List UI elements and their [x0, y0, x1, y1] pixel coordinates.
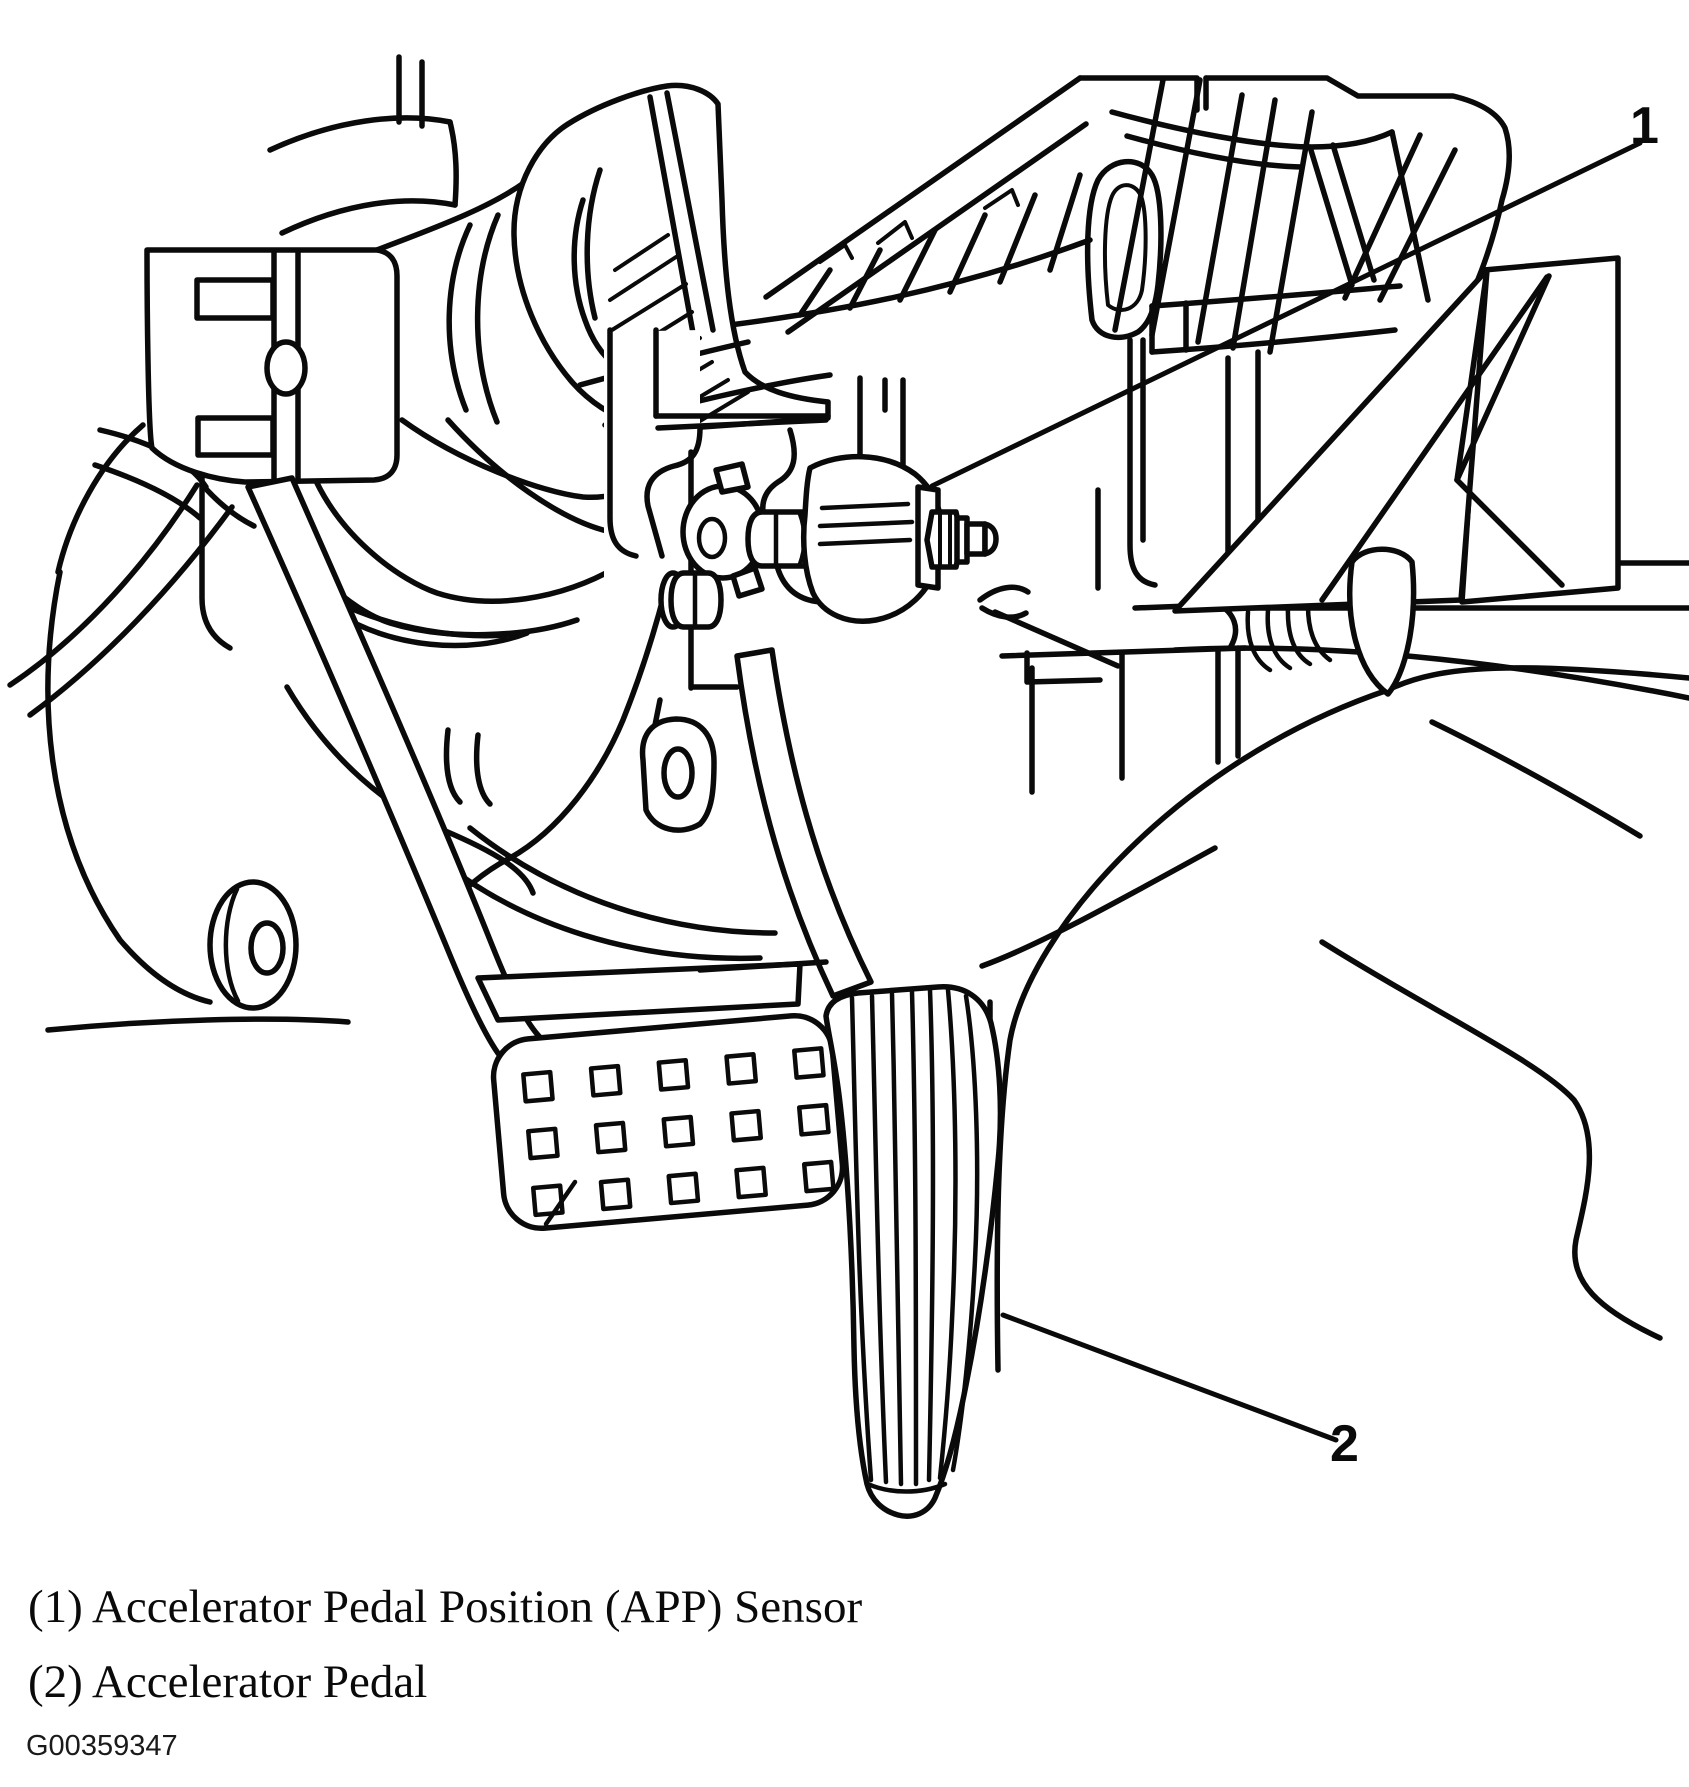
floor-tunnel-curves	[982, 668, 1689, 1370]
app-sensor	[661, 457, 996, 627]
caption-line-2: (2) Accelerator Pedal	[28, 1655, 427, 1709]
callout-label-2: 2	[1330, 1418, 1359, 1470]
firewall-grommet	[48, 882, 348, 1030]
harness-curves	[10, 395, 232, 1002]
figure-id: G00359347	[26, 1730, 178, 1763]
callout-label-1: 1	[1630, 100, 1659, 152]
leader-line-2	[1003, 1315, 1336, 1440]
hvac-duct-panel	[1175, 258, 1618, 694]
pedal-assembly-line-art	[0, 0, 1689, 1787]
caption-line-1: (1) Accelerator Pedal Position (APP) Sen…	[28, 1580, 862, 1634]
figure: 1 2 (1) Accelerator Pedal Position (APP)…	[0, 0, 1689, 1787]
